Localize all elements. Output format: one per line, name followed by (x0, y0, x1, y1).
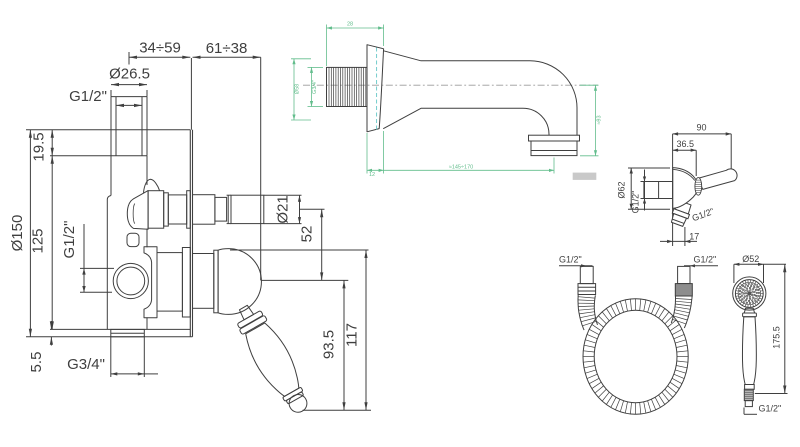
svg-text:175.5: 175.5 (772, 326, 782, 349)
svg-text:G3/4": G3/4" (67, 356, 105, 373)
svg-text:125: 125 (30, 228, 47, 253)
svg-text:Ø62: Ø62 (617, 181, 627, 198)
svg-text:G1/2": G1/2" (61, 221, 78, 259)
svg-text:17: 17 (689, 231, 699, 241)
svg-text:Ø26.5: Ø26.5 (109, 66, 150, 83)
svg-text:G1/2": G1/2" (631, 191, 641, 214)
svg-text:52: 52 (299, 226, 316, 243)
svg-text:Ø150: Ø150 (9, 215, 26, 252)
svg-text:12: 12 (369, 172, 375, 178)
svg-text:G1/2": G1/2" (694, 254, 717, 264)
svg-text:34÷59: 34÷59 (139, 40, 181, 57)
svg-text:G1/2": G1/2" (759, 404, 782, 414)
svg-text:≈145÷170: ≈145÷170 (449, 164, 473, 170)
svg-text:61÷38: 61÷38 (206, 40, 248, 57)
svg-text:28: 28 (347, 22, 353, 28)
svg-text:117: 117 (344, 323, 361, 347)
svg-text:90: 90 (696, 123, 706, 133)
svg-text:Ø21: Ø21 (275, 195, 292, 223)
svg-text:G1/2": G1/2" (559, 254, 582, 264)
svg-text:93.5: 93.5 (321, 330, 338, 359)
svg-text:≈93: ≈93 (596, 115, 602, 124)
svg-text:19.5: 19.5 (31, 132, 48, 161)
svg-text:G1/2": G1/2" (69, 88, 107, 105)
svg-text:G3/4": G3/4" (312, 80, 318, 94)
svg-text:Ø52: Ø52 (742, 254, 759, 264)
svg-text:36.5: 36.5 (677, 139, 695, 149)
svg-text:5.5: 5.5 (28, 352, 45, 373)
svg-text:Ø58: Ø58 (295, 84, 301, 94)
